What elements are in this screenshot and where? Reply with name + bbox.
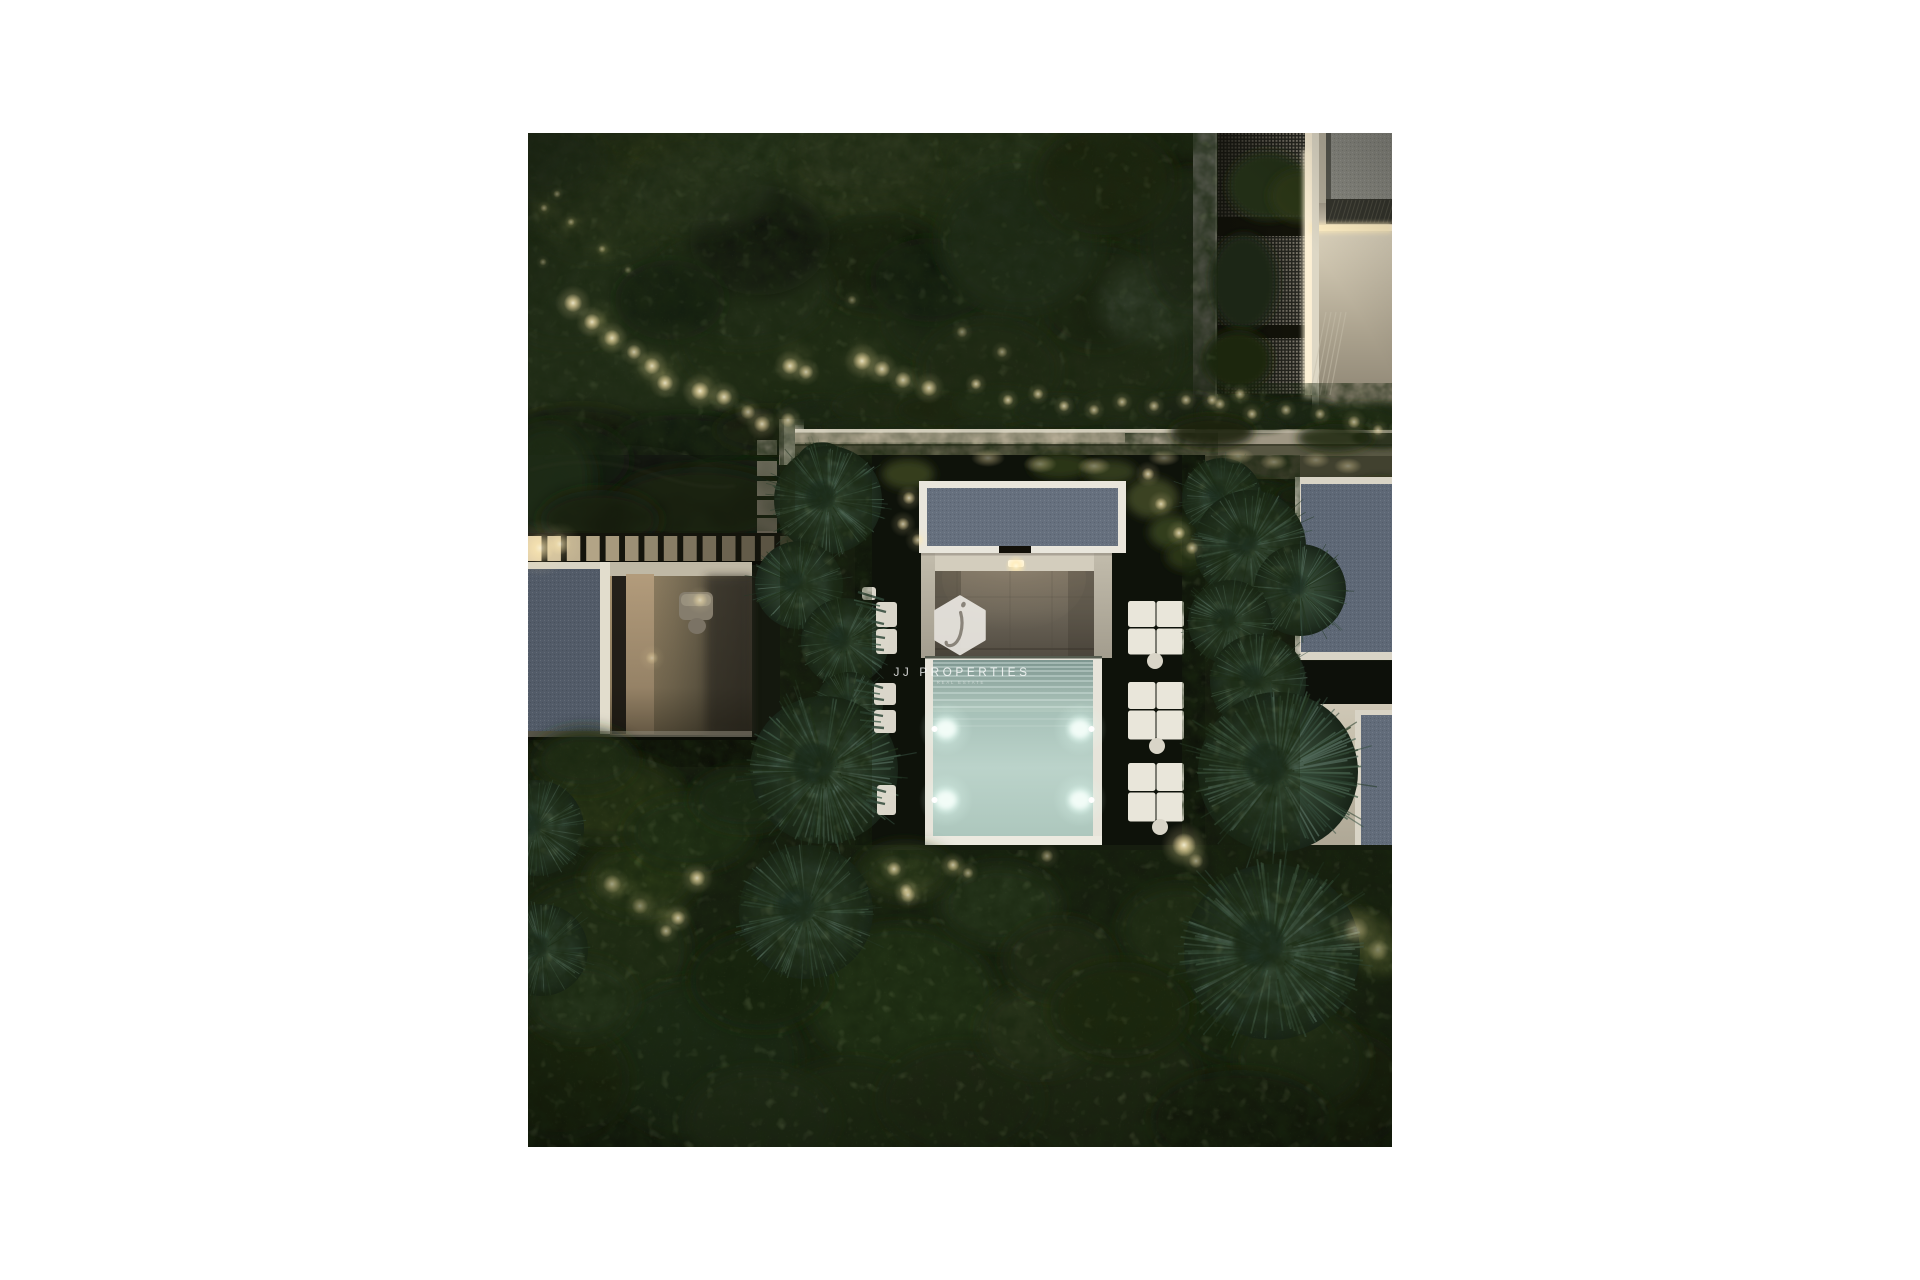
svg-text:REAL ESTATE: REAL ESTATE [937,680,986,685]
svg-text:JJ PROPERTIES: JJ PROPERTIES [893,665,1030,679]
